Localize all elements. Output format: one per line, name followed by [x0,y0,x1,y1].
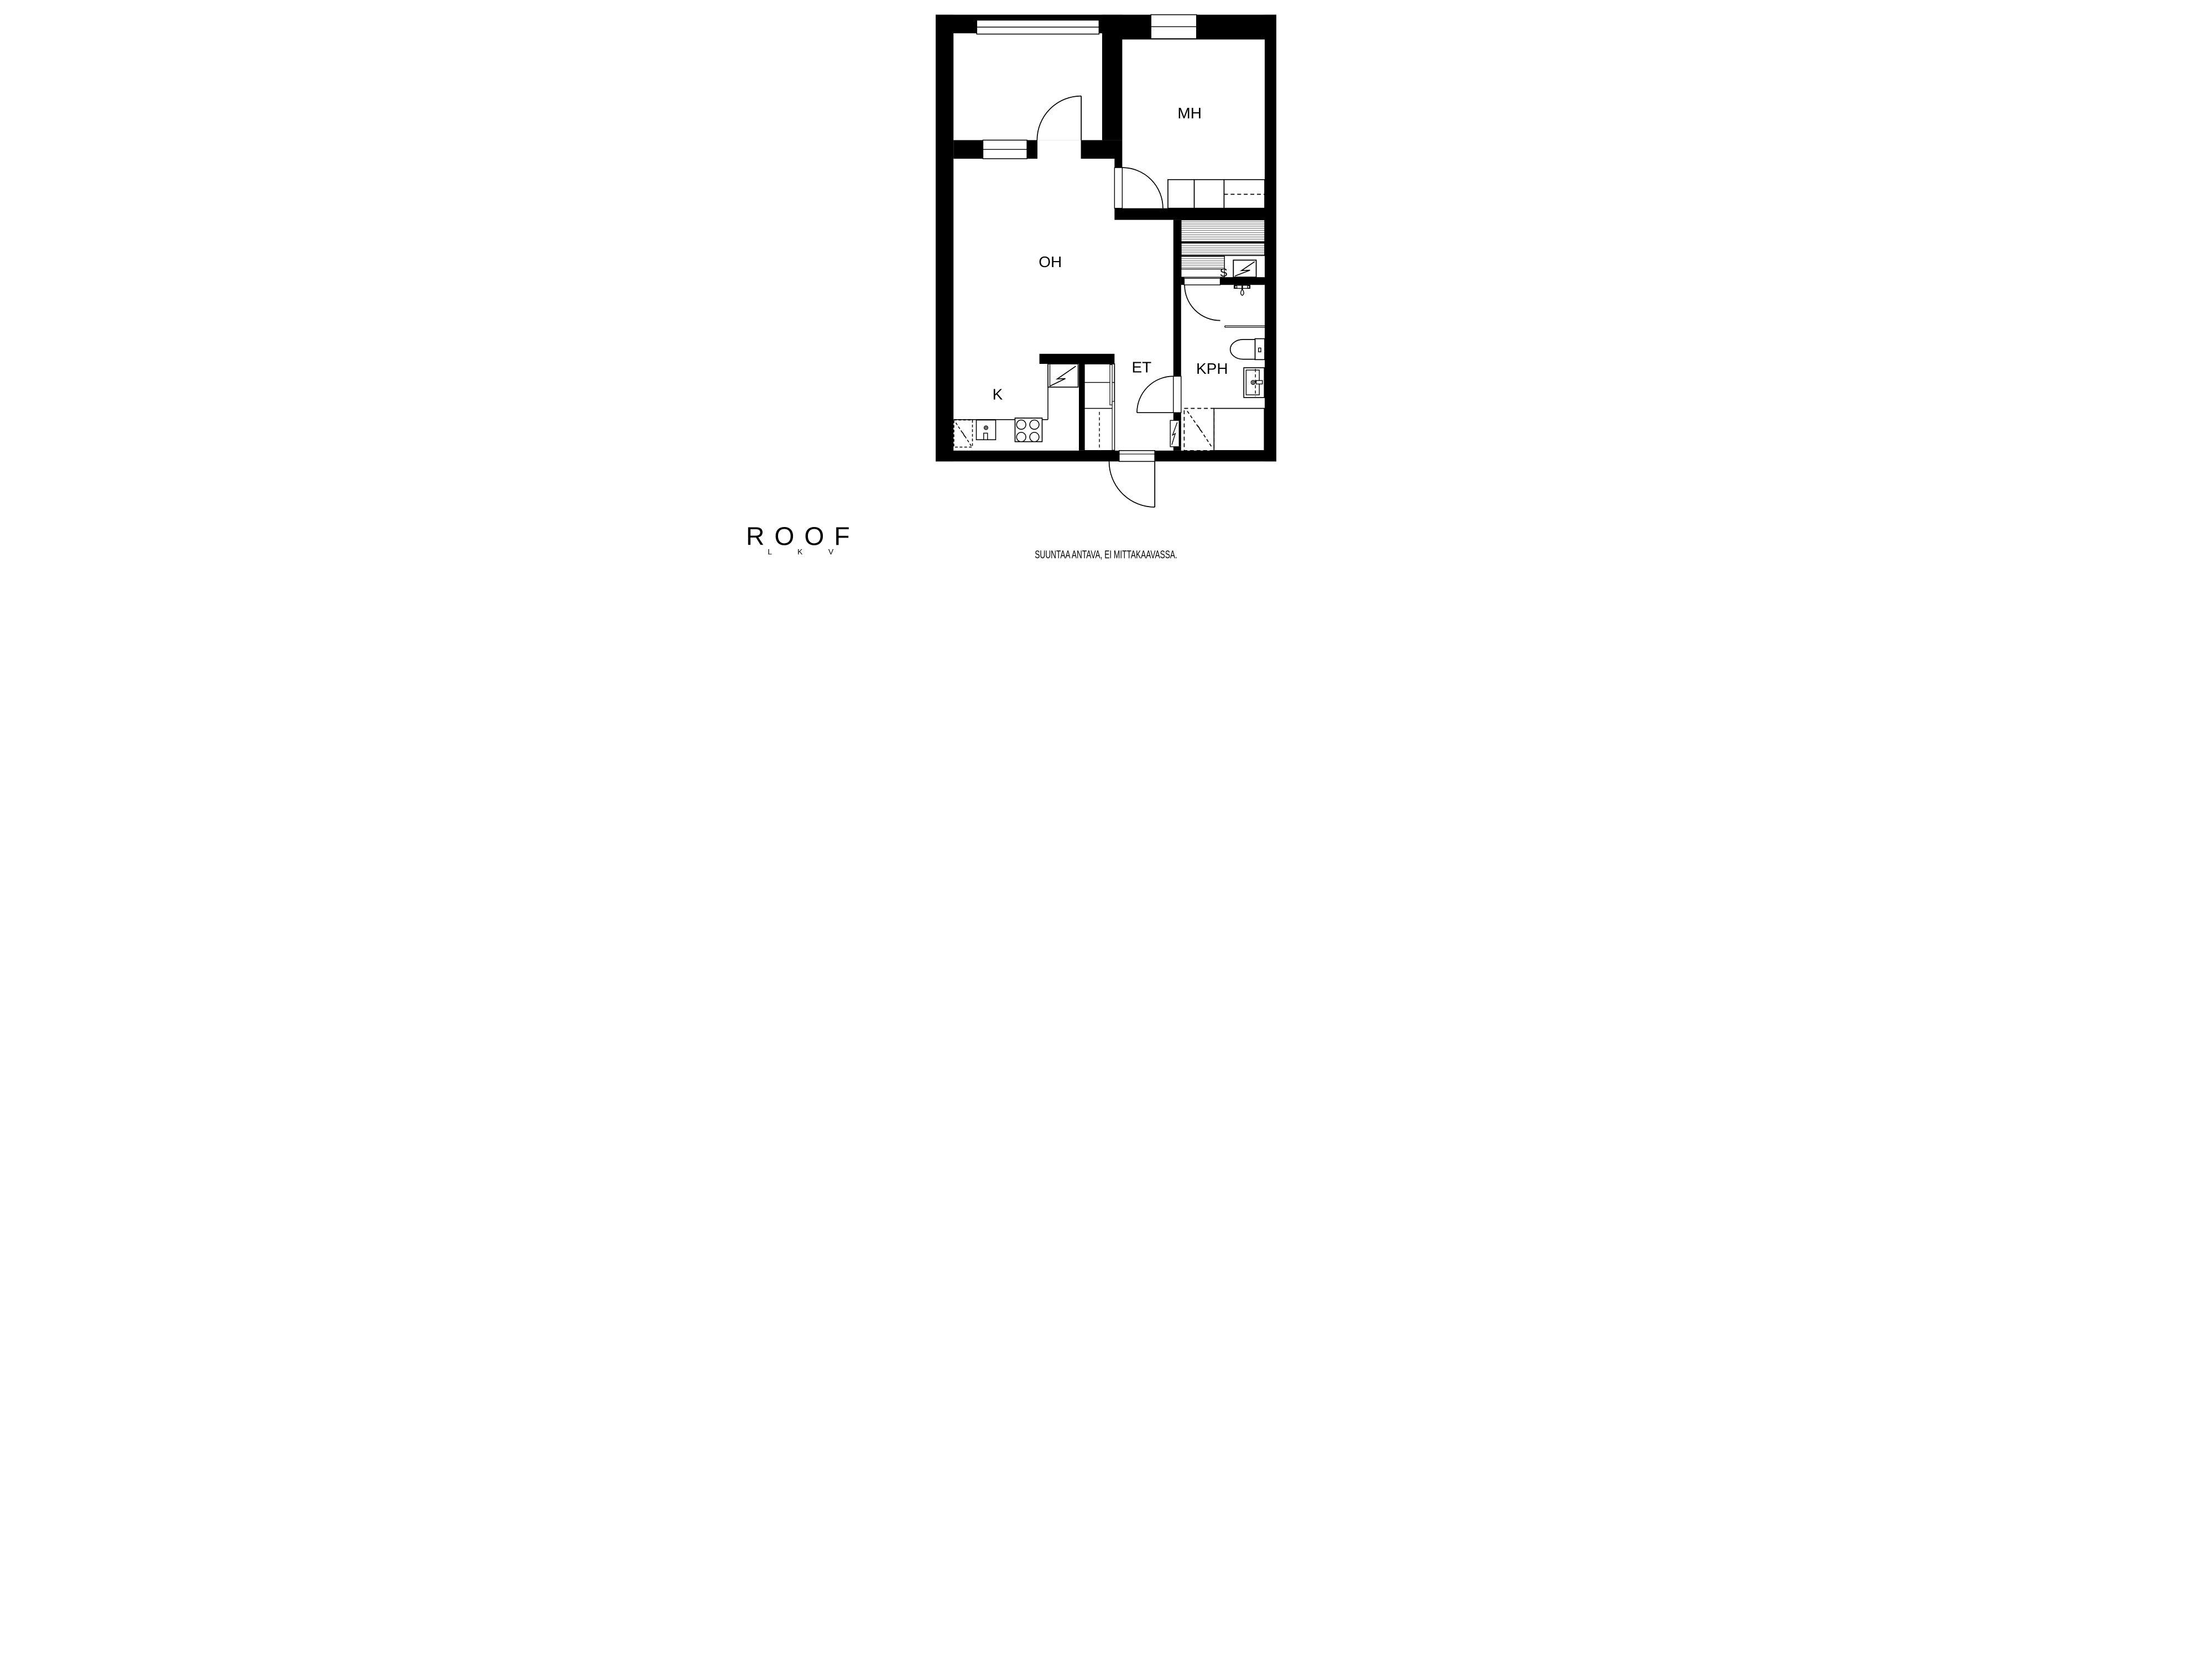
wall-bottom [936,451,1276,462]
wall-et-kph-upper [1173,220,1181,377]
et-fixtures [1084,364,1115,451]
bathroom-counter [1214,409,1264,451]
wardrobe [1084,364,1115,451]
floor-plan: MH OH K ET KPH S ROOF L K V SUUNTAA ANTA… [719,0,1493,581]
sauna-heater-icon [1233,260,1256,277]
refrigerator-icon [1048,364,1078,387]
window-interior-between-rooms [983,140,1027,159]
label-k: K [993,385,1003,403]
label-s: S [1220,267,1228,279]
wall-k-et [1079,364,1084,451]
wall-left [936,15,953,462]
wall-mh-left-stub [1114,159,1122,168]
wall-sauna-bottom-left [1181,277,1185,285]
wall-mh-bottom [1114,208,1265,220]
label-et: ET [1132,358,1152,375]
floor-plan-page: MH OH K ET KPH S ROOF L K V SUUNTAA ANTA… [719,0,1493,581]
electrical-panel-icon [1170,420,1179,447]
label-kph: KPH [1196,360,1228,377]
label-oh: OH [1039,253,1062,270]
wall-right [1265,15,1276,462]
window-mh [1151,15,1197,39]
disclaimer-text: SUUNTAA ANTAVA, EI MITTAKAAVASSA. [1035,549,1177,561]
closet-units [1168,180,1265,208]
window-top-left-room [977,20,1099,34]
wall-kitchen-stub [1040,354,1115,364]
washbasin-icon [1244,368,1264,398]
wall-between-top-room-and-mh [1102,15,1122,140]
wall-et-kph-lower [1173,447,1181,451]
toilet-icon [1230,339,1265,360]
label-mh: MH [1177,105,1202,122]
wall-et-kph-mid [1173,413,1181,420]
stove-icon [1015,418,1042,442]
kitchen-sink-icon [977,420,996,440]
mh-fixtures [1168,180,1265,208]
